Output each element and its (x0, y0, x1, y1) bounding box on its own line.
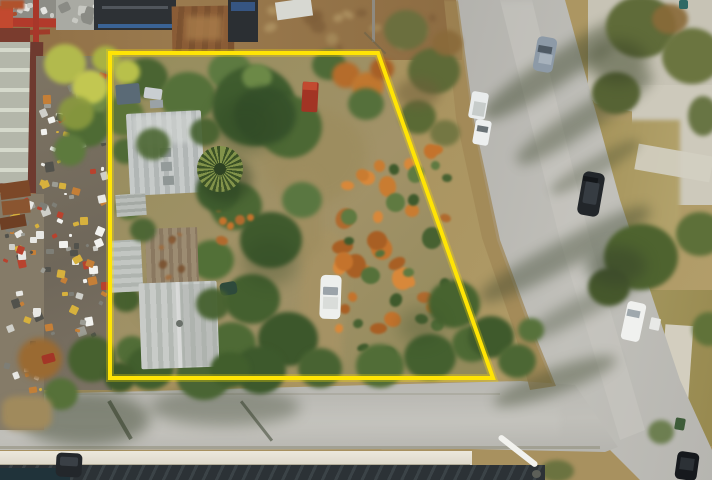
ptree-7 (348, 88, 384, 120)
ute-tray (472, 101, 486, 117)
junk-chips-a (100, 167, 104, 171)
top-dirt-mottle (356, 8, 367, 16)
junk-chips-a (59, 182, 67, 189)
otree-3 (196, 288, 230, 320)
ctree-3 (498, 344, 536, 378)
junk-chips-a (44, 161, 54, 173)
junk-chips-a (80, 217, 89, 225)
orange-near-house (235, 215, 245, 225)
ctree-4 (518, 318, 544, 342)
junk-chips-a (46, 249, 54, 254)
rtree-shadow-1 (588, 40, 648, 84)
pole-top (372, 0, 375, 42)
otree-7 (190, 118, 220, 146)
orange-near-house (246, 213, 254, 221)
orange-shrubs (370, 322, 388, 334)
otree-4 (210, 352, 250, 388)
roof-dark-1-blue-edge (98, 24, 172, 28)
junk-chips-b (5, 234, 9, 239)
shed-small (115, 193, 146, 217)
crane-box (0, 6, 13, 28)
house-skylight-3 (163, 176, 174, 186)
structure-white (143, 87, 162, 100)
euc-1 (384, 10, 428, 50)
junk-chips-a (62, 292, 68, 297)
junk-chips-b (36, 231, 44, 239)
car-dark-south-roof (60, 457, 78, 467)
junk-chips-a (74, 243, 79, 249)
roof-dark-2-blue (231, 2, 255, 11)
top-dirt-mottle (336, 45, 343, 51)
palm-center (214, 163, 226, 175)
pshadow-4 (398, 308, 442, 344)
tree-shadow-bottomroad-2 (150, 388, 300, 426)
house-skylight-2 (161, 162, 172, 172)
otree-5 (104, 362, 136, 392)
truck-orange-topcorner (0, 0, 24, 9)
bin-teal-topright (679, 0, 688, 9)
orange-shrubs (426, 144, 442, 155)
rtree-9 (648, 420, 674, 444)
junk-chips-a (44, 104, 51, 108)
bin-green (674, 417, 686, 431)
junk-chips-a (43, 95, 52, 105)
orange-tree-3 (370, 58, 394, 80)
junk-chips-a (56, 269, 65, 278)
orange-shrubs (339, 304, 350, 314)
otree-2 (130, 218, 156, 242)
rtree-shadow-2 (586, 246, 646, 286)
euc-4 (430, 120, 460, 146)
junk-chips-b (9, 244, 15, 250)
green-shrubs-band (344, 237, 354, 245)
junk-chips-b (28, 386, 37, 393)
junk-chips-a (83, 278, 88, 282)
bush-intersection (540, 460, 574, 480)
euc-shadow (396, 78, 440, 108)
junk-chips-a (80, 319, 87, 325)
car-white-windshield (323, 287, 338, 296)
truck-red-cab (303, 82, 317, 91)
structure-blue (115, 83, 141, 105)
roof-dark-1-skylight (102, 6, 168, 9)
dirt-junk-bottom (2, 396, 52, 430)
crate-2 (1, 199, 30, 216)
pshadow-2 (242, 238, 298, 286)
aerial-property-photo (0, 0, 712, 480)
pshadow-1 (214, 96, 278, 152)
junk-chips-a (87, 276, 97, 286)
btree-4 (298, 348, 342, 388)
shed-vent (176, 320, 183, 327)
pipe-cap (532, 470, 541, 478)
junk-tree-2 (54, 134, 86, 166)
car-blue-roof (538, 53, 553, 65)
rtree-4 (688, 96, 712, 136)
junk-chips-a (59, 240, 68, 248)
wattle-4 (114, 60, 140, 84)
orange-shrubs (340, 180, 353, 190)
car-dark-se-roof (679, 457, 695, 471)
otree-6 (136, 128, 170, 160)
structure-gray (150, 100, 163, 109)
ptree-14 (282, 182, 322, 218)
junk-chips-a (101, 282, 108, 290)
junk-chips-b (17, 259, 26, 269)
rust-roof-light (186, 16, 222, 40)
euc-rust (432, 30, 462, 56)
junk-chips-a (89, 169, 95, 175)
wattle-dark (58, 96, 94, 130)
junk-chips-a (70, 249, 78, 256)
car-white-roofline (323, 297, 338, 310)
btree-5 (356, 344, 404, 388)
